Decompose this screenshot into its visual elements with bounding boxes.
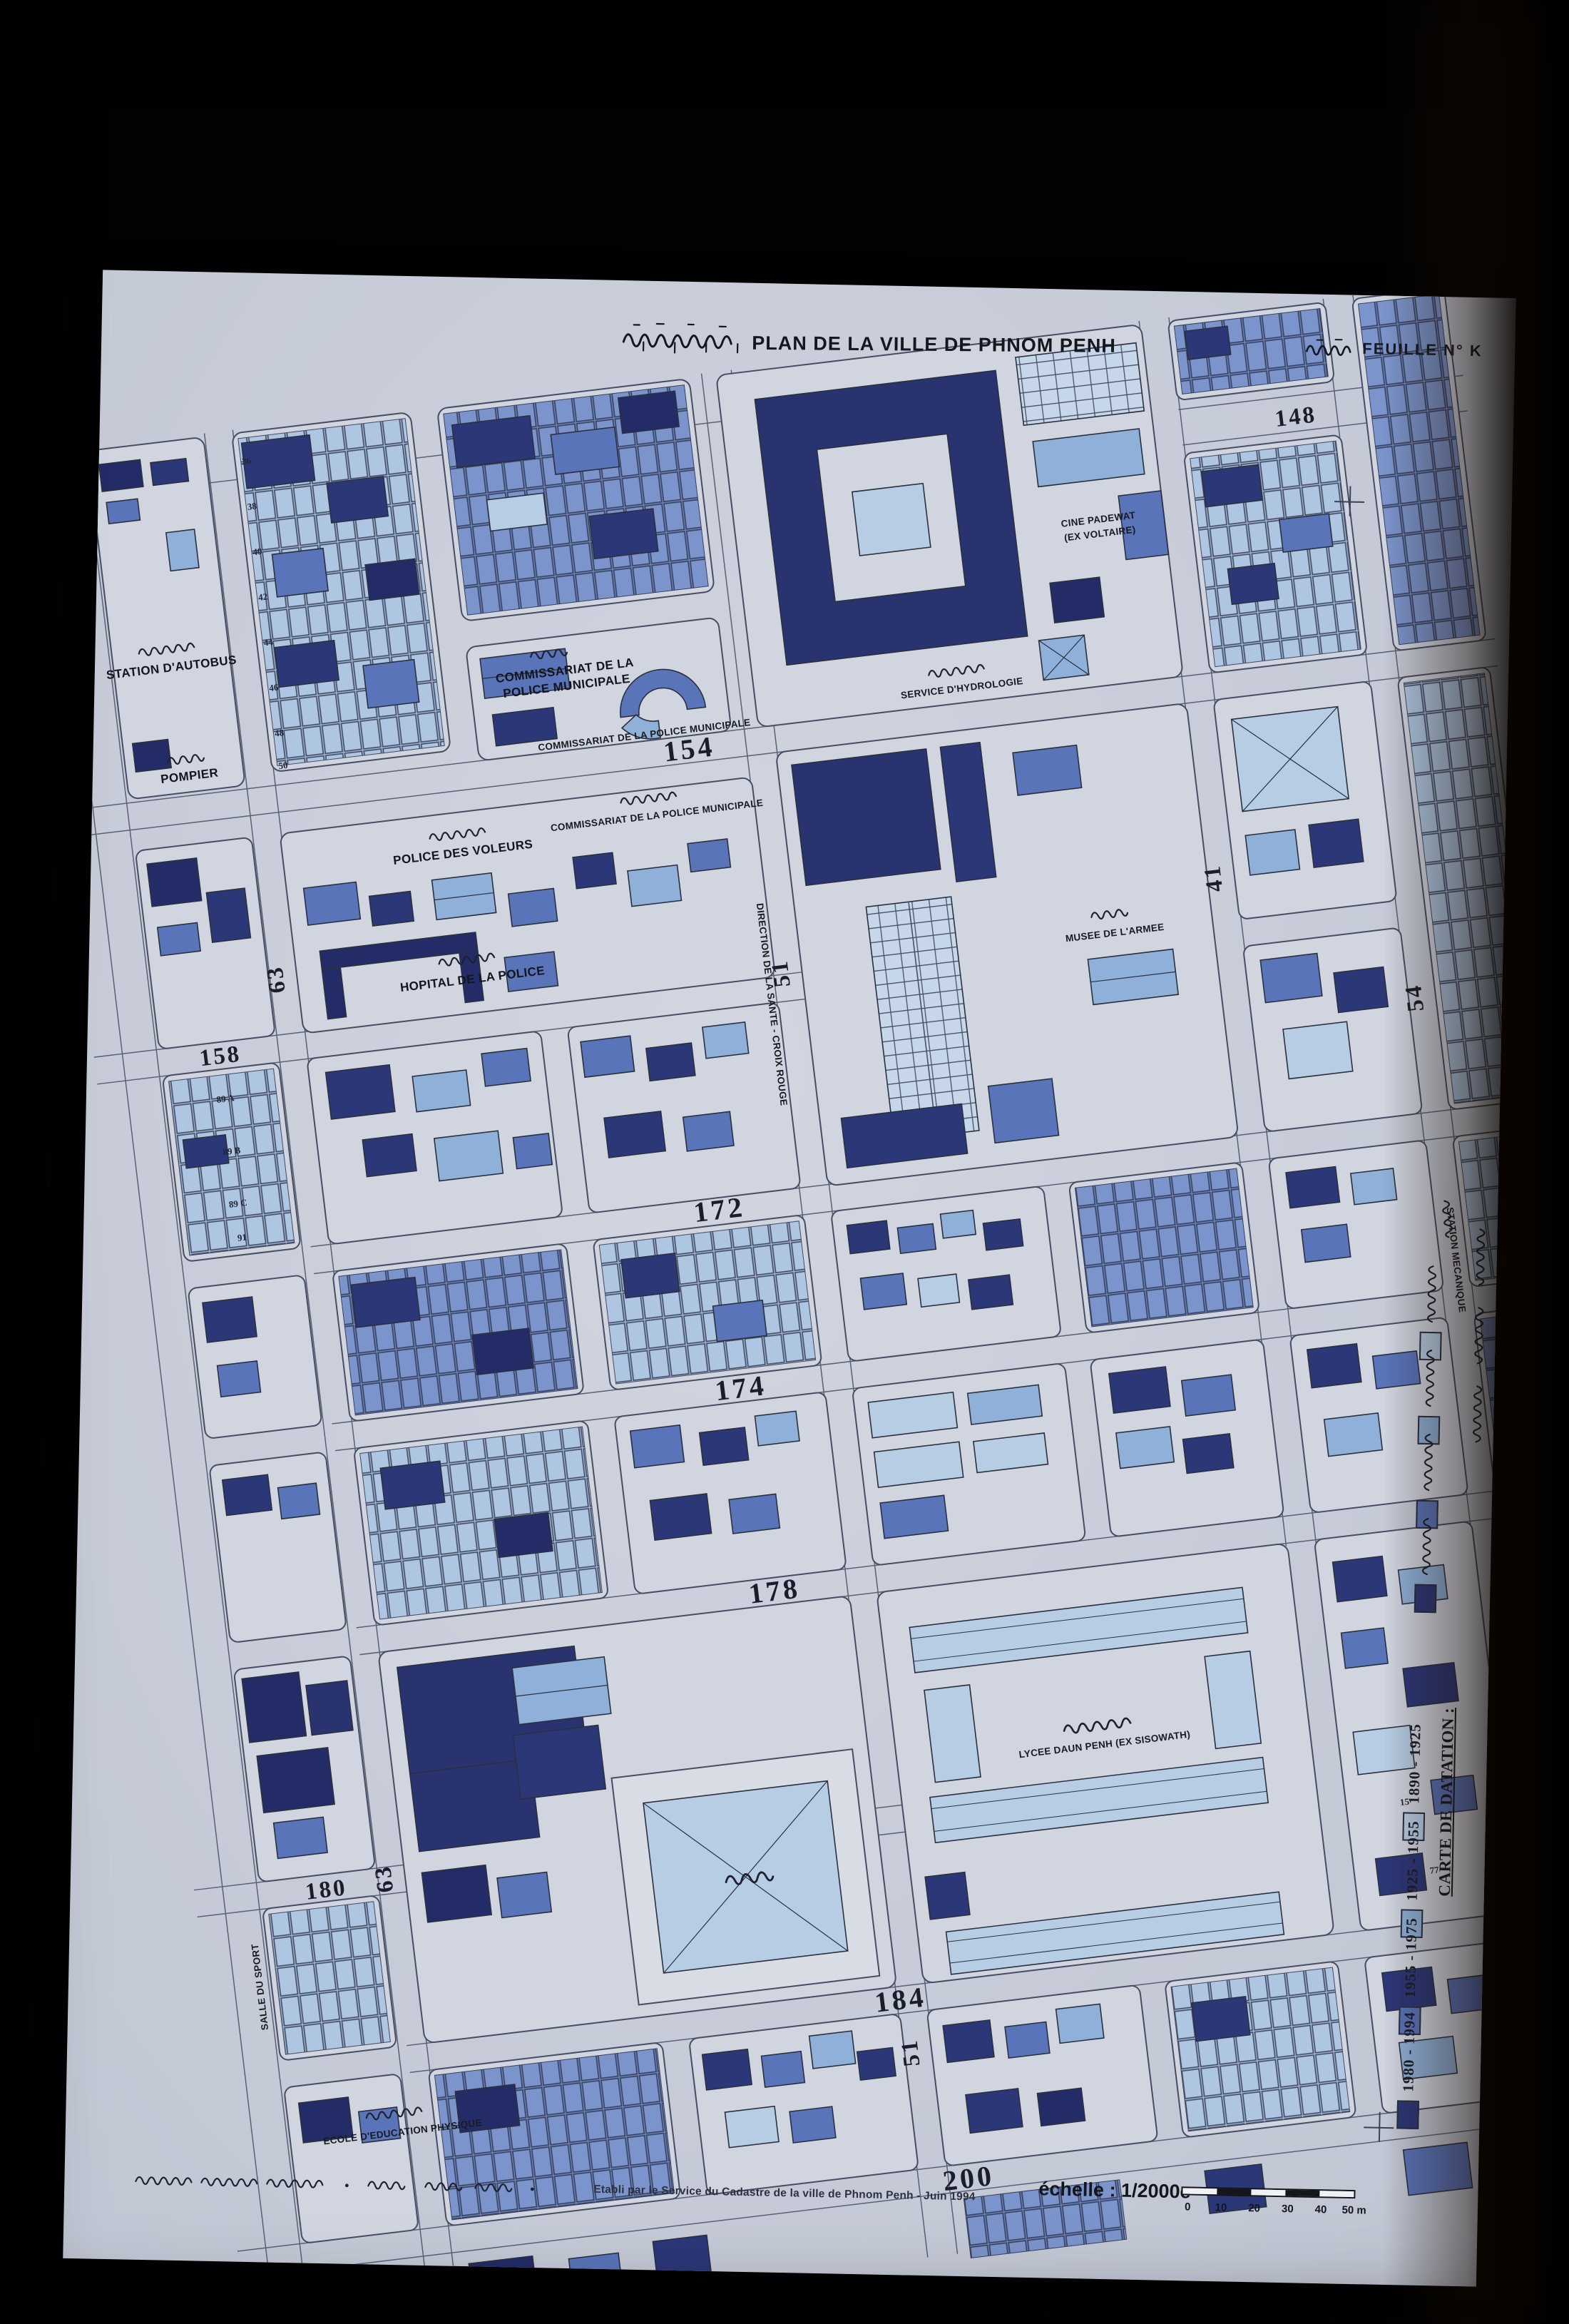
block-large-u-building bbox=[716, 325, 1183, 728]
block-mid-c1 bbox=[307, 1031, 563, 1244]
legend-title: CARTE DE DATATION : bbox=[1436, 1696, 1463, 1897]
block-shophouses-n bbox=[437, 379, 715, 621]
registration-mark bbox=[1334, 486, 1365, 516]
legend-period: 1980 - 1994 bbox=[1399, 2012, 1419, 2092]
poi-salle-sport: SALLE DU SPORT bbox=[250, 1943, 270, 2031]
street-158: 158 bbox=[198, 1041, 242, 1072]
street-63-s: 63 bbox=[370, 1863, 399, 1894]
block-tall-center bbox=[776, 703, 1239, 1186]
block-ne-2 bbox=[1184, 434, 1367, 673]
street-154: 154 bbox=[662, 730, 717, 768]
block-left-shophouse-s bbox=[262, 1895, 397, 2061]
svg-text:91: 91 bbox=[237, 1231, 247, 1243]
block-right-b bbox=[1213, 681, 1396, 919]
legend-swatch bbox=[1414, 1584, 1436, 1614]
map-title: PLAN DE LA VILLE DE PHNOM PENH bbox=[752, 332, 1116, 357]
street-148: 148 bbox=[1274, 402, 1318, 432]
map-drawing: STATION D'AUTOBUS POMPIER COMMISSARIAT D… bbox=[63, 270, 1516, 2286]
block-mid-c2 bbox=[568, 1002, 801, 1213]
sheet-khmer-script bbox=[1304, 335, 1354, 360]
street-174: 174 bbox=[713, 1369, 768, 1407]
block-far-right-f bbox=[1498, 1507, 1516, 1909]
title-khmer-script bbox=[619, 315, 755, 359]
legend-swatch bbox=[1396, 2100, 1419, 2129]
street-63-n: 63 bbox=[262, 964, 290, 994]
map-sheet: STATION D'AUTOBUS POMPIER COMMISSARIAT D… bbox=[63, 270, 1516, 2286]
registration-mark bbox=[1364, 2111, 1394, 2142]
svg-text:50: 50 bbox=[278, 760, 289, 771]
svg-text:38: 38 bbox=[247, 500, 257, 512]
svg-text:40: 40 bbox=[252, 546, 263, 557]
street-41: 41 bbox=[1200, 862, 1228, 893]
svg-text:89 C: 89 C bbox=[228, 1197, 247, 1210]
block-police bbox=[280, 777, 775, 1033]
svg-text:36: 36 bbox=[241, 455, 252, 467]
svg-text:48: 48 bbox=[274, 727, 285, 739]
block-lycee bbox=[877, 1543, 1334, 1983]
svg-text:89 A: 89 A bbox=[216, 1092, 235, 1105]
sheet-number: FEUILLE N° K bbox=[1362, 340, 1483, 360]
block-far-right-b bbox=[1397, 667, 1516, 1110]
street-178: 178 bbox=[747, 1572, 802, 1610]
svg-text:44: 44 bbox=[263, 636, 274, 648]
svg-text:89 B: 89 B bbox=[223, 1145, 242, 1158]
block-right-c bbox=[1243, 927, 1423, 1132]
street-51-n: 51 bbox=[767, 958, 795, 989]
block-left-b bbox=[136, 837, 275, 1050]
block-bus-station bbox=[87, 437, 245, 800]
legend-entry-1980-1994: 1980 - 1994 bbox=[1394, 1979, 1423, 2129]
slide-background: STATION D'AUTOBUS POMPIER COMMISSARIAT D… bbox=[0, 0, 1569, 2324]
street-54: 54 bbox=[1401, 982, 1429, 1013]
street-184: 184 bbox=[873, 1981, 928, 2019]
svg-text:46: 46 bbox=[268, 682, 279, 694]
svg-text:42: 42 bbox=[257, 591, 268, 603]
slide-photo: { "header": { "title_khmer": "ទីក្រុងភ្ន… bbox=[0, 0, 1569, 2324]
block-left-navy-cluster bbox=[234, 1656, 376, 1882]
street-51-s: 51 bbox=[896, 2037, 925, 2068]
scale-label: échelle : 1/2000e bbox=[1038, 2178, 1191, 2203]
street-172: 172 bbox=[692, 1191, 747, 1228]
legend-khmer-entry-4 bbox=[1412, 1463, 1441, 1614]
street-180: 180 bbox=[304, 1875, 348, 1905]
block-school-yard bbox=[378, 1596, 896, 2043]
